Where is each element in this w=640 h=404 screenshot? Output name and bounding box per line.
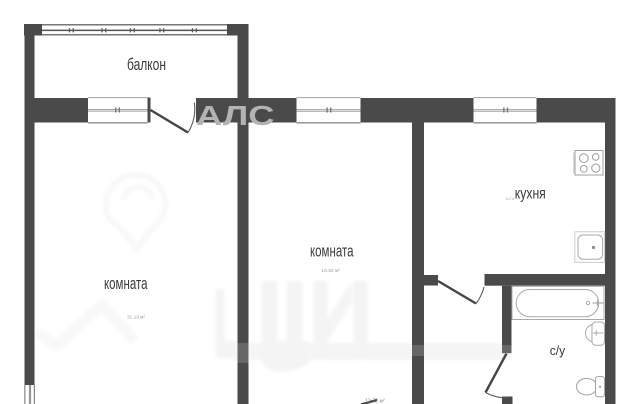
svg-text:АЛС: АЛС xyxy=(196,100,275,131)
svg-text:комната: комната xyxy=(310,242,354,261)
svg-text:комната: комната xyxy=(104,274,148,293)
svg-text:11.17 м²: 11.17 м² xyxy=(506,197,516,201)
svg-text:балкон: балкон xyxy=(127,55,166,74)
svg-text:кухня: кухня xyxy=(515,185,546,202)
svg-text:31.13 м²: 31.13 м² xyxy=(127,315,145,320)
svg-text:12.72 м²: 12.72 м² xyxy=(365,399,385,404)
svg-text:с/у: с/у xyxy=(550,344,566,358)
svg-text:19.50 м²: 19.50 м² xyxy=(321,268,340,274)
